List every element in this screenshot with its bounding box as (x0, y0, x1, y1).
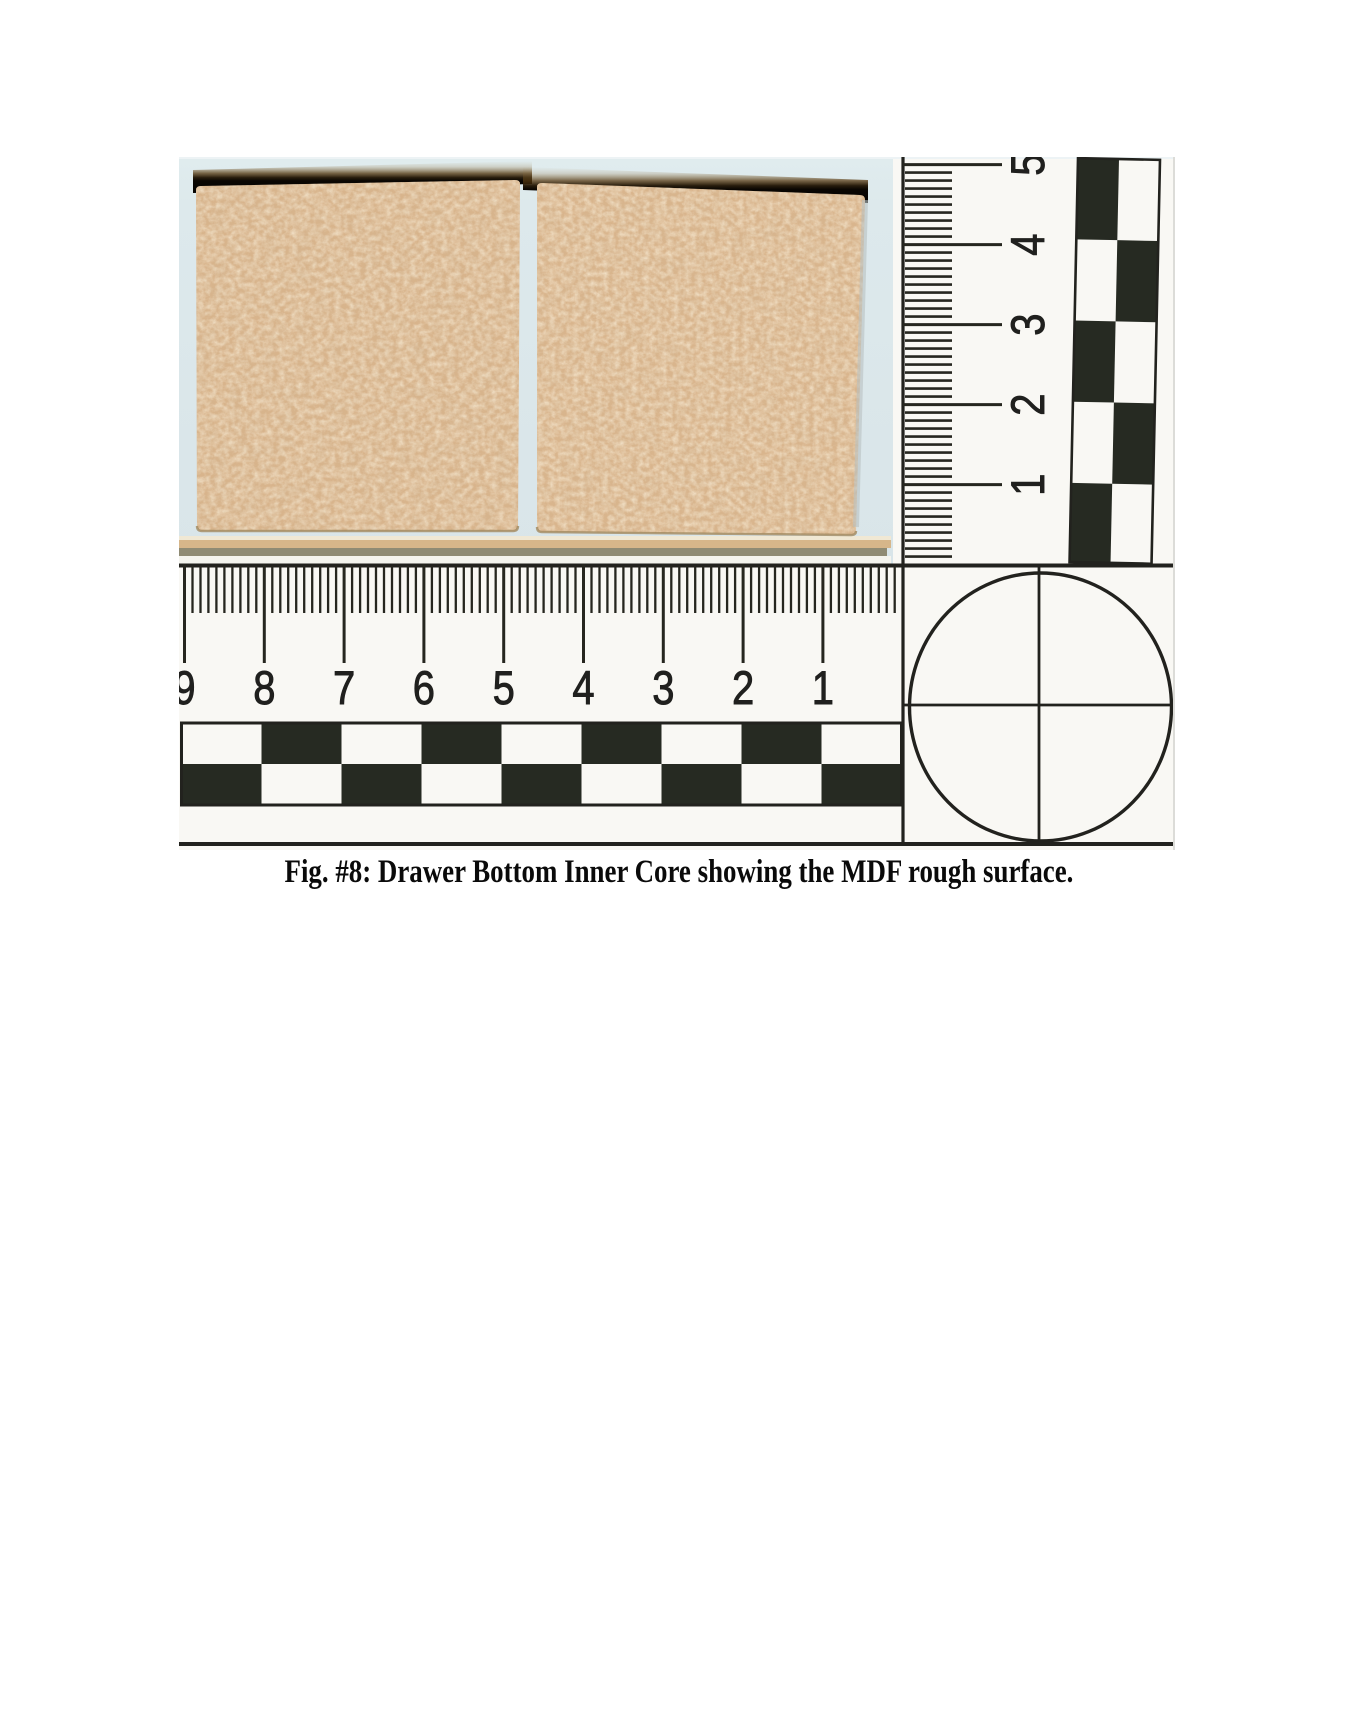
svg-text:7: 7 (333, 663, 355, 715)
svg-text:2: 2 (732, 663, 754, 715)
svg-text:6: 6 (413, 663, 435, 715)
svg-text:1: 1 (812, 663, 834, 715)
svg-text:1: 1 (1003, 473, 1055, 495)
svg-text:3: 3 (652, 663, 674, 715)
svg-text:8: 8 (253, 663, 275, 715)
svg-text:2: 2 (1003, 393, 1055, 415)
svg-text:4: 4 (1003, 233, 1055, 255)
svg-text:9: 9 (179, 663, 196, 715)
svg-text:5: 5 (1003, 157, 1055, 176)
svg-text:3: 3 (1003, 313, 1055, 335)
svg-text:4: 4 (572, 663, 594, 715)
svg-text:5: 5 (493, 663, 515, 715)
